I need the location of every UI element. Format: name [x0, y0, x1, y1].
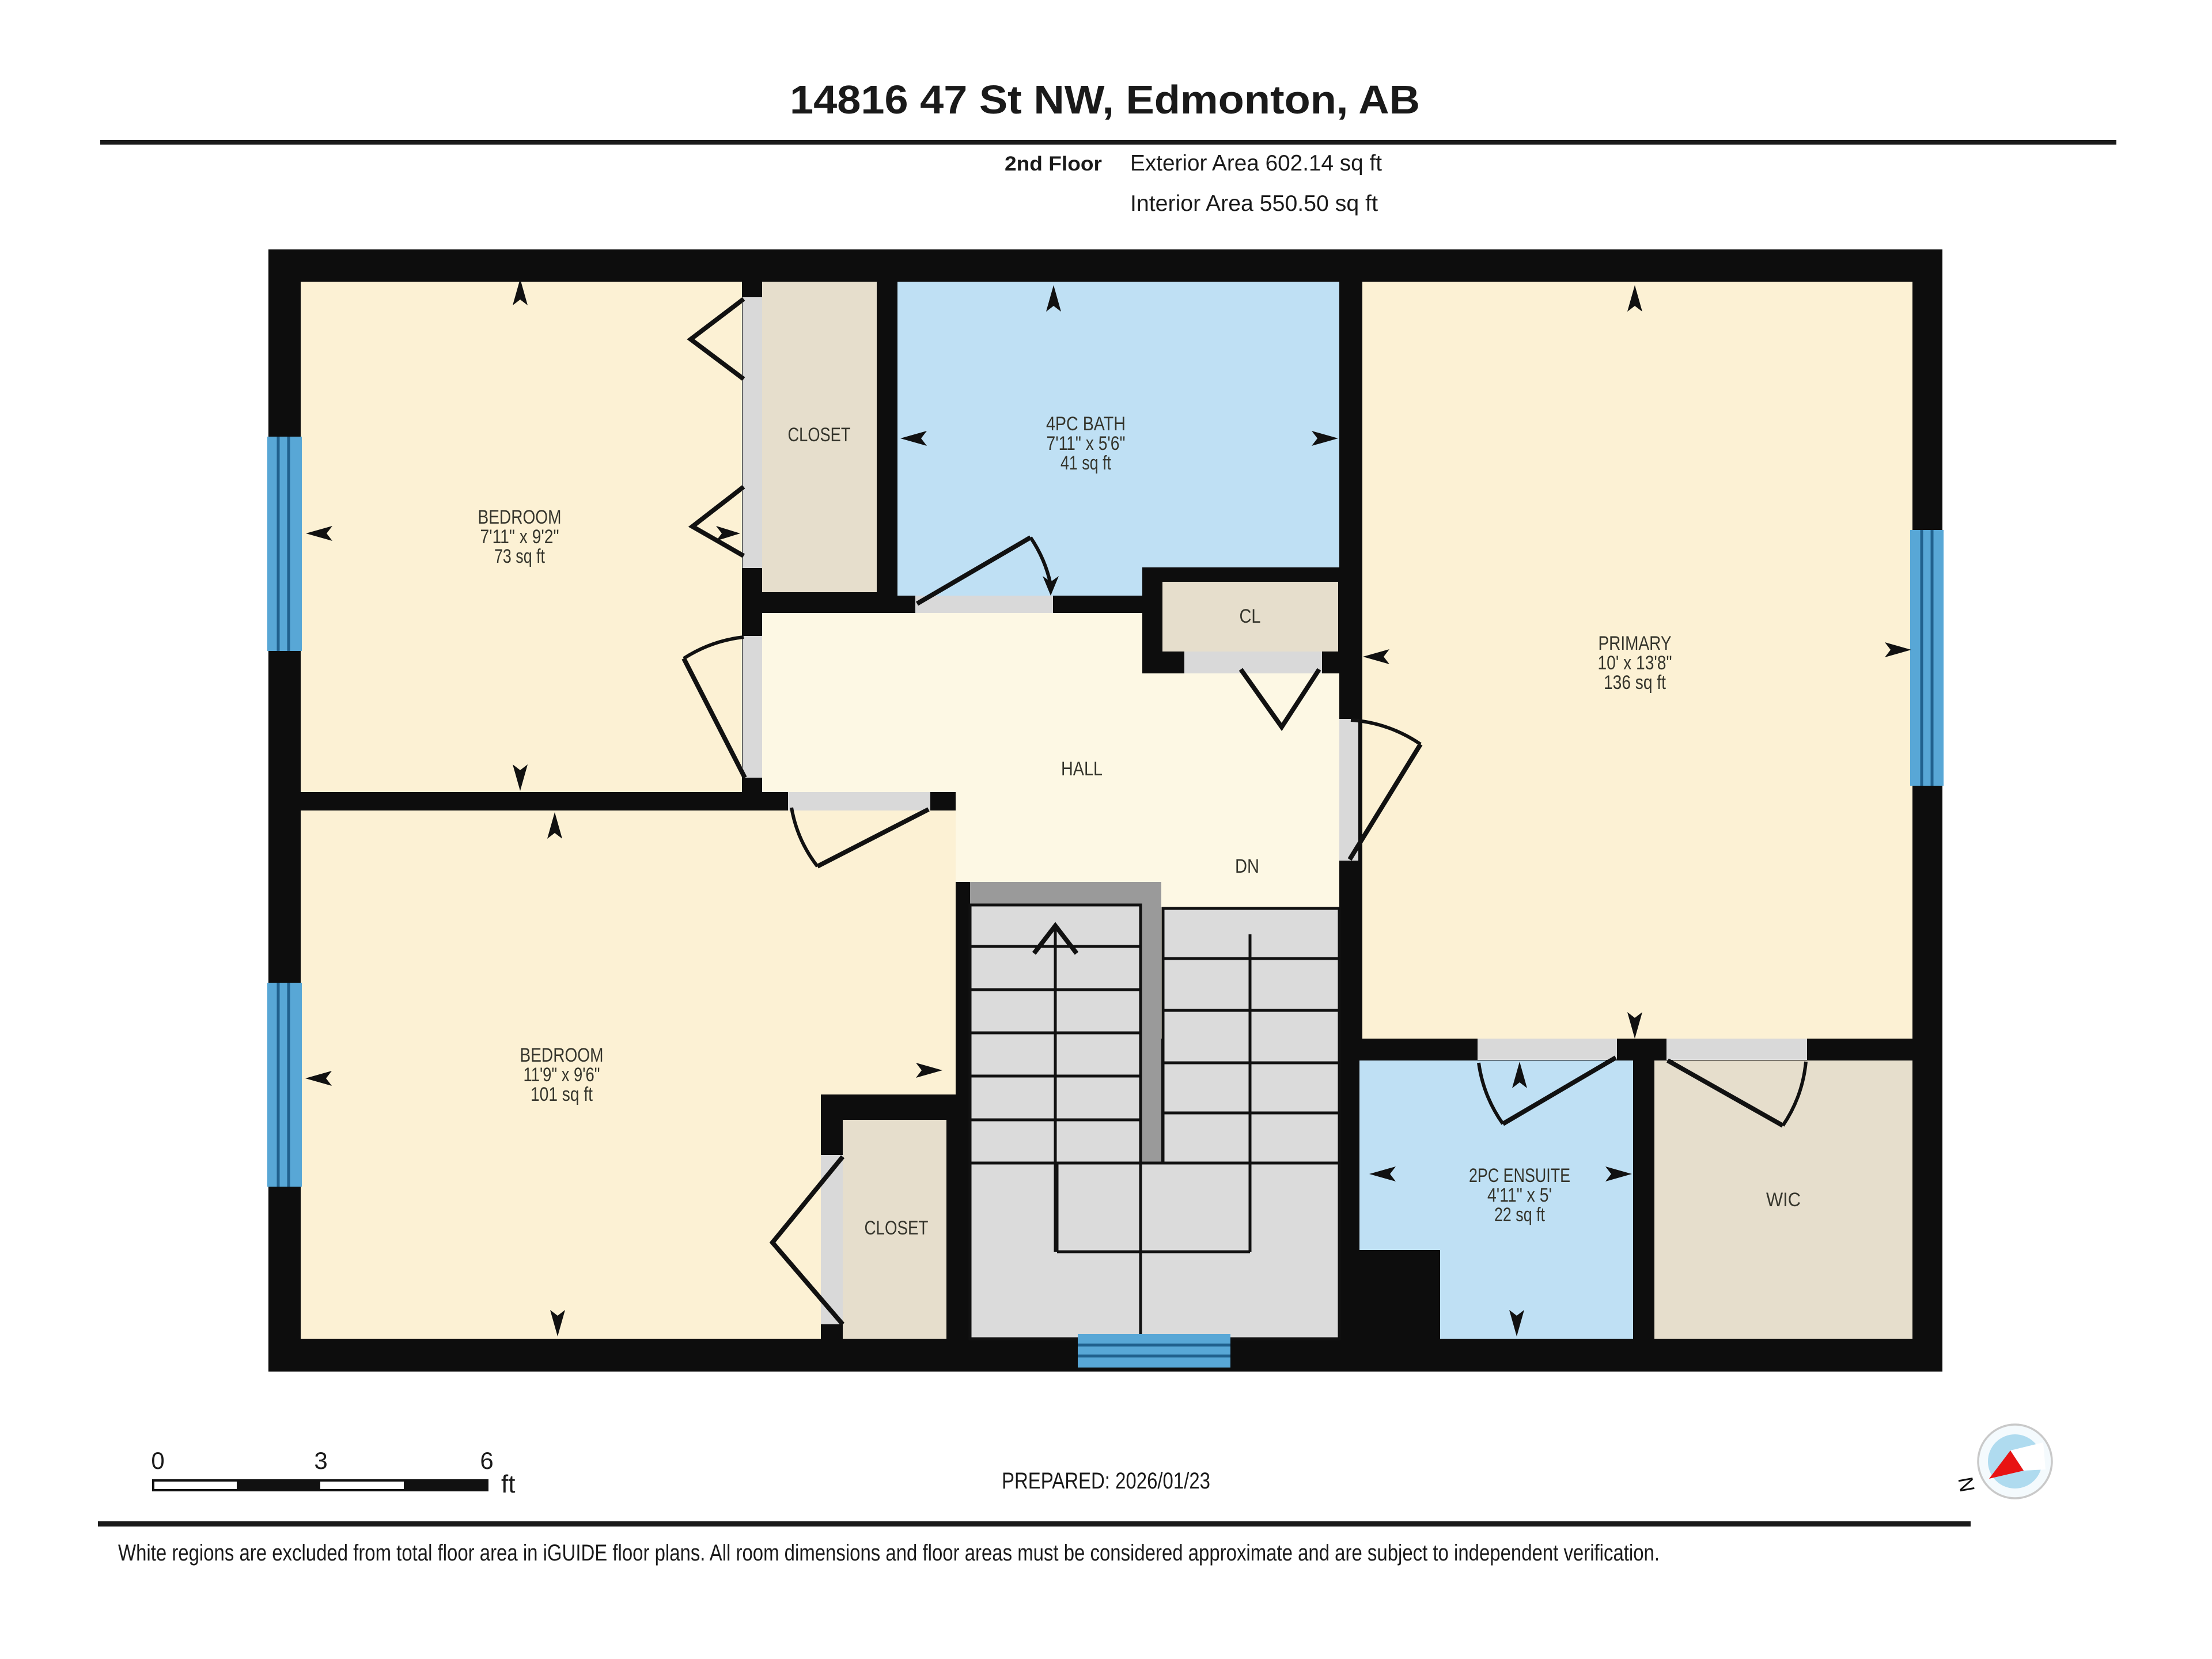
svg-text:WIC: WIC [1766, 1189, 1801, 1211]
svg-text:3: 3 [314, 1447, 327, 1474]
svg-text:0: 0 [151, 1447, 164, 1474]
svg-text:DN: DN [1235, 855, 1259, 877]
svg-text:BEDROOM: BEDROOM [520, 1044, 604, 1066]
svg-text:14816 47 St NW, Edmonton, AB: 14816 47 St NW, Edmonton, AB [790, 77, 1420, 122]
svg-text:7'11" x 9'2": 7'11" x 9'2" [480, 526, 559, 548]
svg-text:2nd Floor: 2nd Floor [1005, 153, 1102, 175]
svg-text:41 sq ft: 41 sq ft [1060, 452, 1111, 474]
svg-text:4'11" x 5': 4'11" x 5' [1487, 1184, 1552, 1206]
svg-text:HALL: HALL [1061, 758, 1103, 780]
svg-text:11'9" x 9'6": 11'9" x 9'6" [524, 1064, 600, 1086]
svg-text:CLOSET: CLOSET [865, 1217, 929, 1239]
svg-text:Interior Area 550.50 sq ft: Interior Area 550.50 sq ft [1130, 191, 1378, 216]
svg-text:73 sq ft: 73 sq ft [494, 546, 545, 567]
svg-text:101 sq ft: 101 sq ft [531, 1084, 593, 1105]
svg-text:CLOSET: CLOSET [788, 424, 851, 446]
svg-text:7'11" x 5'6": 7'11" x 5'6" [1047, 433, 1126, 454]
svg-text:2PC ENSUITE: 2PC ENSUITE [1469, 1165, 1570, 1187]
svg-text:22 sq ft: 22 sq ft [1494, 1204, 1545, 1226]
svg-text:Exterior Area 602.14 sq ft: Exterior Area 602.14 sq ft [1130, 151, 1382, 176]
svg-text:10' x 13'8": 10' x 13'8" [1598, 652, 1672, 674]
svg-text:CL: CL [1240, 605, 1261, 627]
svg-text:ft: ft [501, 1470, 515, 1498]
svg-text:136 sq ft: 136 sq ft [1604, 672, 1666, 694]
svg-text:PREPARED: 2026/01/23: PREPARED: 2026/01/23 [1002, 1468, 1210, 1494]
svg-text:4PC BATH: 4PC BATH [1046, 413, 1126, 435]
svg-text:White regions are excluded fro: White regions are excluded from total fl… [118, 1540, 1660, 1566]
svg-text:6: 6 [480, 1447, 493, 1474]
svg-text:BEDROOM: BEDROOM [478, 506, 562, 528]
svg-text:PRIMARY: PRIMARY [1599, 632, 1672, 654]
